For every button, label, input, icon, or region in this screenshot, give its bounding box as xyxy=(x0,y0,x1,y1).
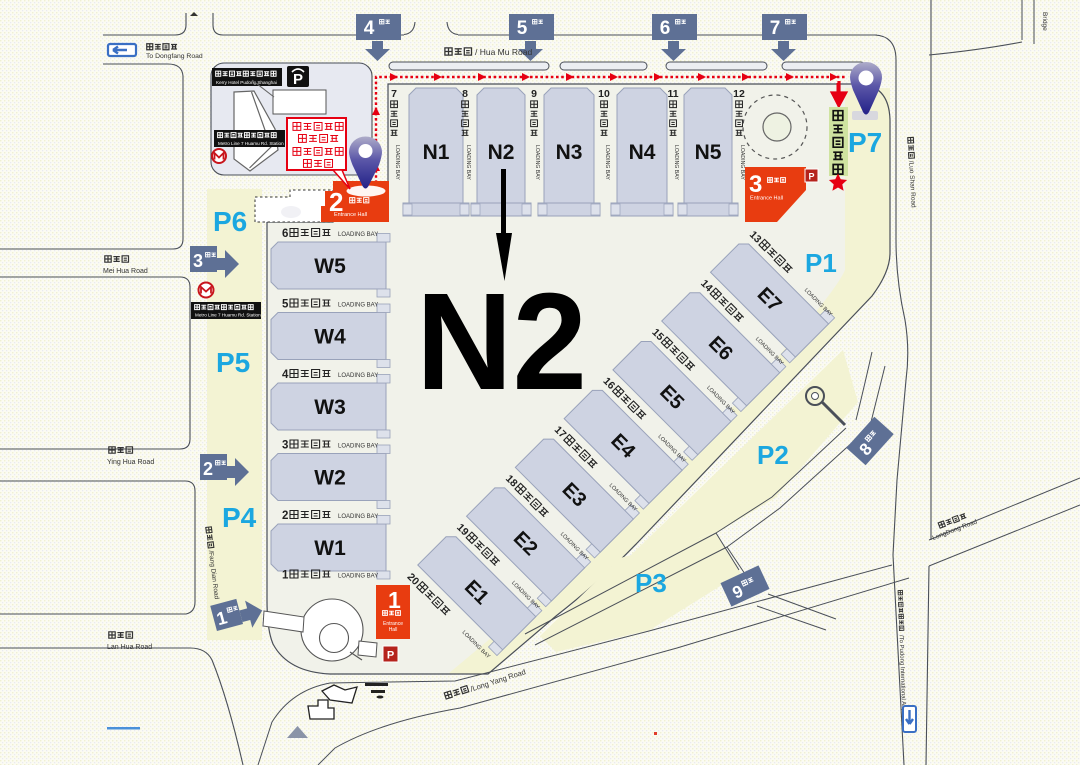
svg-text:N2: N2 xyxy=(488,141,515,164)
svg-text:1: 1 xyxy=(282,570,289,582)
svg-text:N2: N2 xyxy=(416,265,587,419)
svg-text:7: 7 xyxy=(770,18,781,39)
svg-text:Entrance Hall: Entrance Hall xyxy=(334,212,367,218)
svg-text:P: P xyxy=(808,172,814,182)
svg-text:LOADING BAY: LOADING BAY xyxy=(338,232,378,238)
svg-text:P7: P7 xyxy=(848,127,882,158)
svg-text:W5: W5 xyxy=(314,255,346,278)
svg-text:Bridge: Bridge xyxy=(1041,12,1048,31)
svg-text:LOADING BAY: LOADING BAY xyxy=(338,303,378,309)
svg-text:10: 10 xyxy=(598,88,610,100)
svg-text:4: 4 xyxy=(364,18,375,39)
svg-text:Lan Hua Road: Lan Hua Road xyxy=(107,644,152,651)
svg-text:6: 6 xyxy=(660,18,671,39)
svg-text:N3: N3 xyxy=(556,141,583,164)
svg-text:LOADING BAY: LOADING BAY xyxy=(338,574,378,580)
svg-text:P5: P5 xyxy=(216,347,250,378)
svg-text:LOADING BAY: LOADING BAY xyxy=(394,145,400,180)
svg-text:W1: W1 xyxy=(314,537,346,560)
svg-text:W2: W2 xyxy=(314,467,346,490)
svg-text:12: 12 xyxy=(733,88,745,100)
svg-text:LOADING BAY: LOADING BAY xyxy=(739,145,745,180)
svg-text:P1: P1 xyxy=(805,248,837,278)
svg-text:P: P xyxy=(293,71,303,88)
svg-text:5: 5 xyxy=(282,299,289,311)
svg-text:9: 9 xyxy=(531,88,537,100)
svg-text:Metro Line 7 Huamu Rd. Station: Metro Line 7 Huamu Rd. Station xyxy=(195,313,261,318)
svg-text:5: 5 xyxy=(517,18,528,39)
svg-text:LOADING BAY: LOADING BAY xyxy=(338,514,378,520)
svg-text:3: 3 xyxy=(749,171,762,198)
svg-text:W3: W3 xyxy=(314,396,346,419)
svg-text:LOADING BAY: LOADING BAY xyxy=(534,145,540,180)
svg-text:Ying Hua Road: Ying Hua Road xyxy=(107,459,154,466)
svg-text:2: 2 xyxy=(282,510,288,522)
svg-text:Kerry Hotel Pudong Shanghai: Kerry Hotel Pudong Shanghai xyxy=(216,80,277,85)
svg-text:LOADING BAY: LOADING BAY xyxy=(604,145,610,180)
svg-text:/ Hua Mu Road: / Hua Mu Road xyxy=(475,47,532,57)
svg-text:3: 3 xyxy=(282,440,288,452)
svg-text:2: 2 xyxy=(203,459,213,479)
svg-text:3: 3 xyxy=(193,251,203,271)
svg-text:8: 8 xyxy=(462,88,468,100)
svg-text:P6: P6 xyxy=(213,206,247,237)
svg-text:LOADING BAY: LOADING BAY xyxy=(338,444,378,450)
svg-text:7: 7 xyxy=(391,88,397,100)
svg-text:N1: N1 xyxy=(423,141,450,164)
svg-text:Entrance Hall: Entrance Hall xyxy=(750,196,783,202)
svg-text:Mei Hua Road: Mei Hua Road xyxy=(103,268,148,275)
svg-text:11: 11 xyxy=(667,88,678,100)
svg-text:N4: N4 xyxy=(629,141,656,164)
svg-text:1: 1 xyxy=(388,587,401,613)
svg-text:P3: P3 xyxy=(635,568,667,598)
svg-text:P2: P2 xyxy=(757,440,789,470)
svg-text:Metro Line 7 Huamu Rd. Station: Metro Line 7 Huamu Rd. Station xyxy=(218,141,284,146)
svg-text:Hall: Hall xyxy=(389,627,398,633)
svg-text:To Dongfang Road: To Dongfang Road xyxy=(146,53,203,60)
svg-text:4: 4 xyxy=(282,369,289,381)
svg-text:LOADING BAY: LOADING BAY xyxy=(673,145,679,180)
svg-text:LOADING BAY: LOADING BAY xyxy=(465,145,471,180)
svg-text:6: 6 xyxy=(282,228,288,240)
svg-text:N5: N5 xyxy=(695,141,722,164)
svg-text:P: P xyxy=(387,650,394,662)
svg-text:W4: W4 xyxy=(314,326,346,349)
svg-text:P4: P4 xyxy=(222,502,257,533)
svg-text:LOADING BAY: LOADING BAY xyxy=(338,373,378,379)
